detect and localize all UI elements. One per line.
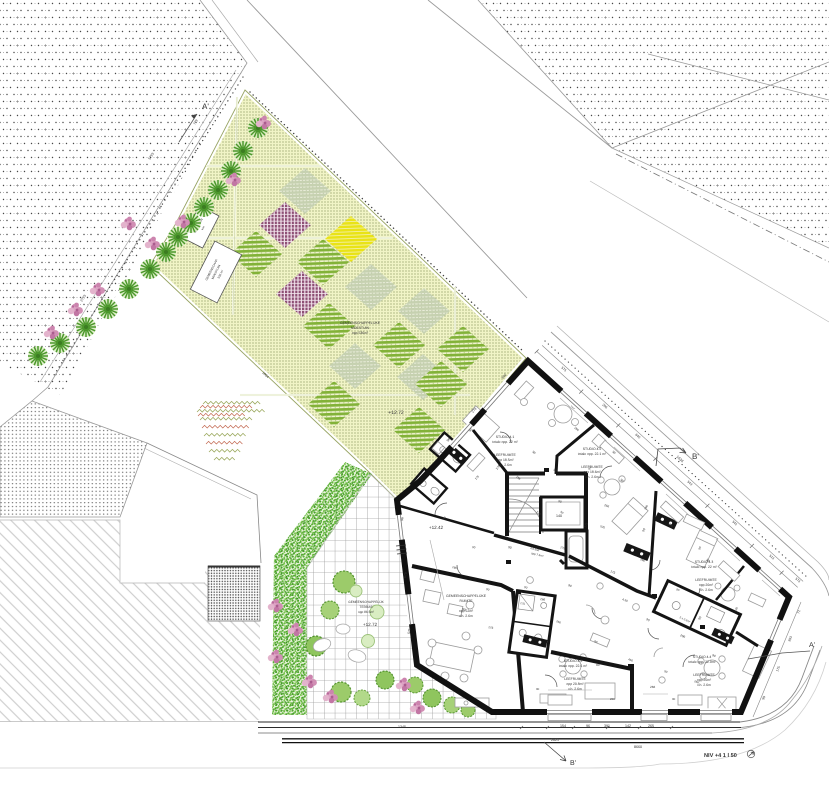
svg-text:266: 266	[540, 597, 546, 602]
svg-text:A': A'	[202, 102, 209, 111]
svg-text:v.h. 2.6m: v.h. 2.6m	[498, 463, 512, 467]
svg-text:STUDIO 4.1: STUDIO 4.1	[496, 435, 515, 439]
svg-text:LEEFRUIMTE: LEEFRUIMTE	[693, 673, 715, 677]
svg-text:opp 18.5m²: opp 18.5m²	[496, 458, 514, 462]
svg-text:266: 266	[610, 697, 615, 701]
svg-text:MOESTUIN: MOESTUIN	[351, 326, 369, 330]
svg-text:266: 266	[650, 685, 655, 689]
svg-text:571: 571	[407, 628, 412, 634]
svg-text:GEMEENSCHAPPELIJKE: GEMEENSCHAPPELIJKE	[340, 321, 381, 325]
svg-text:opp 18.6m²: opp 18.6m²	[583, 470, 601, 474]
svg-text:90: 90	[596, 663, 600, 667]
svg-text:140: 140	[556, 514, 562, 518]
svg-text:90: 90	[536, 687, 540, 691]
svg-text:totale opp. 22 m²: totale opp. 22 m²	[492, 440, 518, 444]
svg-text:v.h. 2.6m: v.h. 2.6m	[585, 475, 599, 479]
svg-text:1345: 1345	[398, 725, 406, 729]
svg-text:2021: 2021	[551, 738, 559, 742]
svg-text:RUIMTE: RUIMTE	[460, 599, 474, 603]
svg-text:opp 20m²: opp 20m²	[699, 583, 714, 587]
svg-text:totale opp. 22.9m²: totale opp. 22.9m²	[688, 660, 716, 664]
svg-text:391: 391	[604, 724, 610, 728]
svg-text:154: 154	[560, 724, 566, 728]
svg-text:opp 536m²: opp 536m²	[352, 331, 369, 335]
svg-text:LEEFRUIMTE: LEEFRUIMTE	[564, 677, 586, 681]
svg-text:v.h. 2.6m: v.h. 2.6m	[699, 588, 713, 592]
svg-text:B': B'	[692, 452, 699, 461]
svg-text:v.h. 2.6m: v.h. 2.6m	[459, 614, 473, 618]
svg-text:opp 20.8m²: opp 20.8m²	[566, 682, 584, 686]
svg-text:A': A'	[809, 642, 815, 649]
svg-text:STUDIO 4.4: STUDIO 4.4	[693, 655, 712, 659]
svg-text:96: 96	[400, 517, 404, 521]
svg-text:8660: 8660	[634, 745, 642, 749]
svg-text:LEEFRUIMTE: LEEFRUIMTE	[494, 453, 516, 457]
svg-text:NIV +4 1 l 50: NIV +4 1 l 50	[704, 752, 737, 759]
svg-text:opp 86.5m²: opp 86.5m²	[358, 610, 374, 614]
svg-text:TERRAS: TERRAS	[360, 605, 373, 609]
svg-text:675: 675	[403, 572, 408, 578]
svg-text:STUDIO 4.3: STUDIO 4.3	[695, 560, 714, 564]
svg-text:totale opp. 22.1 m²: totale opp. 22.1 m²	[578, 452, 607, 456]
svg-text:v.h. 2.6m: v.h. 2.6m	[697, 683, 711, 687]
svg-text:142: 142	[625, 724, 631, 728]
svg-text:opp 52m²: opp 52m²	[459, 609, 474, 613]
svg-text:90: 90	[672, 697, 676, 701]
svg-text:STUDIO 4.2: STUDIO 4.2	[583, 447, 602, 451]
svg-text:+12.72: +12.72	[363, 622, 378, 627]
svg-text:LEEFRUIMTE: LEEFRUIMTE	[581, 465, 603, 469]
svg-text:265: 265	[648, 724, 654, 728]
svg-text:B': B'	[570, 760, 576, 767]
svg-text:GEMEENSCHAPPELIJKE: GEMEENSCHAPPELIJKE	[446, 594, 487, 598]
svg-text:+12.72: +12.72	[388, 410, 404, 416]
svg-text:totale opp. 22.6 m²: totale opp. 22.6 m²	[559, 664, 588, 668]
svg-text:GEMEENSCHAPPELIJK: GEMEENSCHAPPELIJK	[348, 600, 384, 604]
svg-text:+12.42: +12.42	[429, 525, 444, 530]
svg-text:LEEFRUIMTE: LEEFRUIMTE	[695, 578, 717, 582]
svg-text:STUDIO 4.5: STUDIO 4.5	[564, 659, 583, 663]
svg-text:v.h. 2.6m: v.h. 2.6m	[568, 687, 582, 691]
svg-text:totale opp. 22 m²: totale opp. 22 m²	[691, 565, 717, 569]
svg-text:96: 96	[586, 724, 590, 728]
